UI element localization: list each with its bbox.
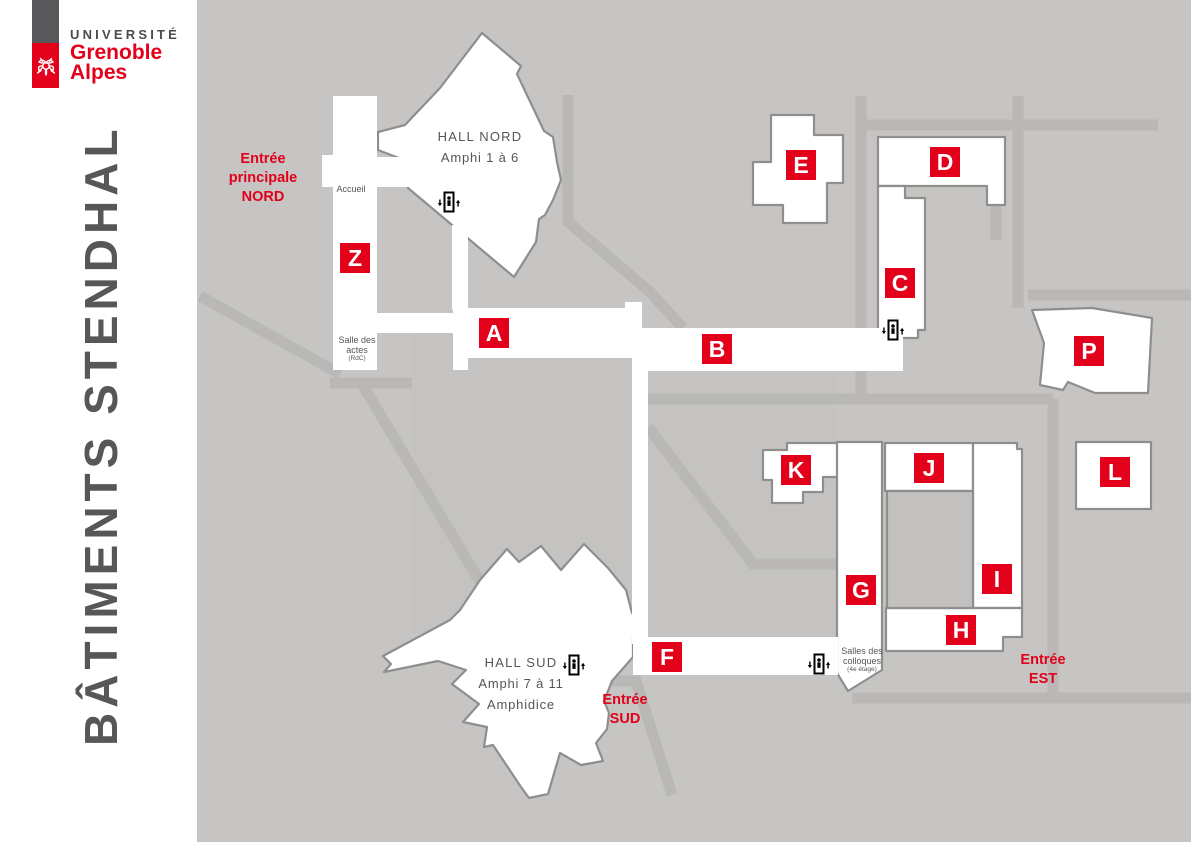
jih-courtyard xyxy=(887,491,973,608)
corridor-z-a xyxy=(377,313,454,333)
building-marker-C: C xyxy=(885,268,915,298)
building-marker-I: I xyxy=(982,564,1012,594)
room-name-line: Accueil xyxy=(336,184,365,194)
building-marker-F: F xyxy=(652,642,682,672)
hall-label: HALL SUDAmphi 7 à 11Amphidice xyxy=(478,652,563,715)
brand-line-2: Alpes xyxy=(70,63,162,83)
building-marker-Z: Z xyxy=(340,243,370,273)
building-marker-H: H xyxy=(946,615,976,645)
building-marker-K: K xyxy=(781,455,811,485)
hall-sub-label: Amphi 7 à 11 xyxy=(478,673,563,694)
room-name-line: actes xyxy=(338,345,375,355)
uga-flower-icon xyxy=(35,53,57,79)
uga-logo-red-block xyxy=(32,43,59,88)
university-wordmark: UNIVERSITÉ xyxy=(70,27,180,42)
page-title-vertical: BÂTIMENTS STENDHAL xyxy=(74,146,138,746)
building-marker-P: P xyxy=(1074,336,1104,366)
room-name-line: Salle des xyxy=(338,335,375,345)
entrance-label: EntréeprincipaleNORD xyxy=(229,150,298,207)
building-marker-B: B xyxy=(702,334,732,364)
room-name-line: colloques xyxy=(841,656,883,666)
building-marker-J: J xyxy=(914,453,944,483)
map-canvas xyxy=(0,0,1191,842)
brand-line-1: Grenoble xyxy=(70,43,162,63)
corridor-b-f xyxy=(632,371,648,644)
stendhal-campus-map-page: UNIVERSITÉ Grenoble Alpes BÂTIMENTS STEN… xyxy=(0,0,1191,842)
building-marker-A: A xyxy=(479,318,509,348)
building-b-shape xyxy=(632,328,903,371)
uga-logo-gray-block xyxy=(32,0,59,43)
room-floor-note: (4e étage) xyxy=(841,666,883,674)
entrance-line: EST xyxy=(1020,670,1065,689)
elevator-icon xyxy=(806,652,832,678)
hall-sub-label: Amphidice xyxy=(478,694,563,715)
corridor-z-hallnord xyxy=(376,157,413,187)
room-label: Salle desactes(RdC) xyxy=(338,335,375,363)
building-marker-G: G xyxy=(846,575,876,605)
entrance-line: SUD xyxy=(602,710,647,729)
entrance-line: Entrée xyxy=(602,691,647,710)
room-floor-note: (RdC) xyxy=(338,355,375,363)
building-marker-E: E xyxy=(786,150,816,180)
entrance-line: NORD xyxy=(229,188,298,207)
building-z-shape xyxy=(333,96,377,370)
entrance-line: Entrée xyxy=(229,150,298,169)
building-marker-D: D xyxy=(930,147,960,177)
hall-name: HALL NORD xyxy=(438,126,523,147)
hall-label: HALL NORDAmphi 1 à 6 xyxy=(438,126,523,168)
hall-name: HALL SUD xyxy=(478,652,563,673)
brand-wordmark: Grenoble Alpes xyxy=(70,43,162,83)
building-c-shape xyxy=(878,186,925,338)
entrance-line: Entrée xyxy=(1020,651,1065,670)
elevator-icon xyxy=(561,653,587,679)
corridor-hallnord-a xyxy=(452,225,468,310)
room-label: Accueil xyxy=(336,184,365,194)
hall-sub-label: Amphi 1 à 6 xyxy=(438,147,523,168)
entrance-label: EntréeEST xyxy=(1020,651,1065,689)
entrance-line: principale xyxy=(229,169,298,188)
room-label: Salles descolloques(4e étage) xyxy=(841,646,883,674)
building-marker-L: L xyxy=(1100,457,1130,487)
entrance-label: EntréeSUD xyxy=(602,691,647,729)
room-name-line: Salles des xyxy=(841,646,883,656)
accueil-entrance-bay xyxy=(322,155,333,187)
elevator-icon xyxy=(436,190,462,216)
elevator-icon xyxy=(880,318,906,344)
central-courtyard-area xyxy=(648,378,837,637)
